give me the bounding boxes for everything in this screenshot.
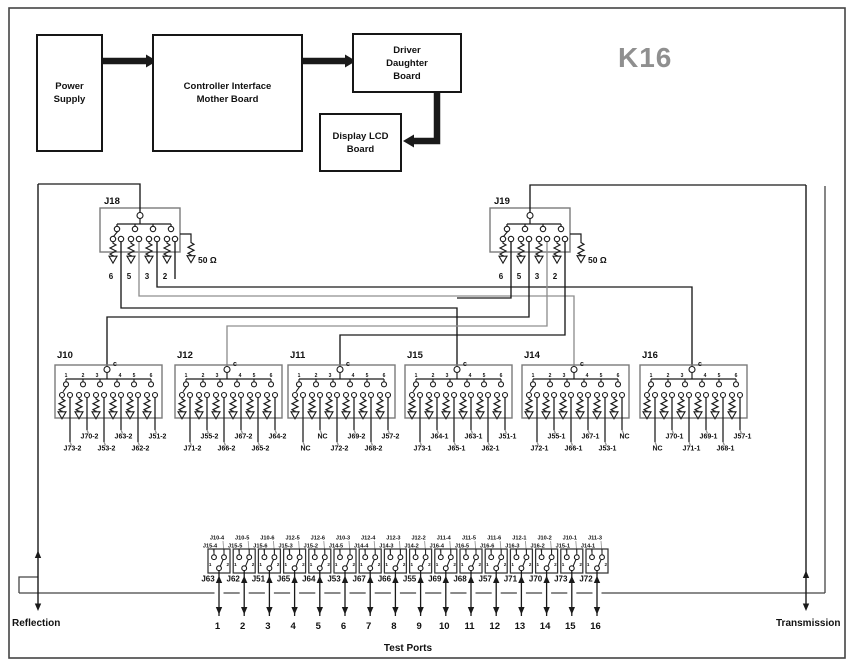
output-number: 2 bbox=[163, 272, 168, 281]
cable-label: J12-3 bbox=[386, 536, 400, 542]
cable-label: J10-2 bbox=[537, 536, 551, 542]
block-name: J11 bbox=[290, 350, 306, 361]
resistor-icon bbox=[577, 397, 583, 412]
contact-pin bbox=[508, 236, 513, 241]
switch-block-J16: J16c1NC2J70-13J71-14J69-15J68-16J57-1 bbox=[640, 350, 752, 453]
contact-pin bbox=[369, 393, 374, 398]
contact-number: 1 bbox=[411, 562, 414, 567]
contact-pin bbox=[132, 382, 137, 387]
contact-number: 2 bbox=[353, 562, 356, 567]
pin-number: 6 bbox=[270, 373, 273, 379]
common-pin bbox=[454, 367, 460, 373]
contact-pin bbox=[527, 393, 532, 398]
contact-number: 2 bbox=[453, 562, 456, 567]
resistor-icon bbox=[110, 397, 116, 412]
contact-pin bbox=[522, 226, 527, 231]
block-box bbox=[55, 365, 162, 418]
cable-label: J12-6 bbox=[311, 536, 325, 542]
pin-number: 5 bbox=[483, 373, 486, 379]
contact-pin bbox=[540, 226, 545, 231]
port-number: 10 bbox=[439, 621, 450, 632]
enclosure-bus bbox=[19, 186, 825, 593]
port-number: 5 bbox=[316, 621, 322, 632]
contact-number: 2 bbox=[504, 562, 507, 567]
contact-pin bbox=[338, 555, 343, 560]
cable-label: J10-6 bbox=[260, 536, 274, 542]
block-name: J10 bbox=[57, 350, 73, 361]
port-number: 14 bbox=[540, 621, 551, 632]
cable-label: J11-6 bbox=[487, 536, 501, 542]
contact-pin bbox=[524, 555, 529, 560]
output-number: 2 bbox=[553, 272, 558, 281]
block-name: J12 bbox=[177, 350, 193, 361]
contact-number: 1 bbox=[234, 562, 237, 567]
pin-number: 4 bbox=[352, 373, 355, 379]
output-label: J66-2 bbox=[218, 446, 236, 453]
output-label: J64-2 bbox=[269, 434, 287, 441]
contact-pin bbox=[558, 226, 563, 231]
contact-pin bbox=[81, 382, 86, 387]
port-connector-J72: J11-3J14-112J7216 bbox=[579, 536, 608, 633]
port-connector-J65: J12-5J15-312J654 bbox=[277, 536, 306, 633]
contact-pin bbox=[616, 382, 621, 387]
output-label: J65-1 bbox=[448, 446, 466, 453]
port-number: 7 bbox=[366, 621, 371, 632]
common-pin bbox=[224, 367, 230, 373]
contact-pin bbox=[666, 382, 671, 387]
switch-block-J10: J10c1J73-22J70-23J53-24J63-25J62-26J51-2 bbox=[55, 350, 167, 453]
route-J18-6 bbox=[121, 242, 457, 366]
contact-pin bbox=[427, 393, 432, 398]
resistor-icon bbox=[644, 397, 650, 412]
resistor-icon bbox=[494, 397, 500, 412]
resistor-icon bbox=[343, 397, 349, 412]
contact-pin bbox=[414, 382, 419, 387]
contact-pin bbox=[544, 236, 549, 241]
contact-pin bbox=[115, 382, 120, 387]
contact-pin bbox=[168, 226, 173, 231]
down-arrowhead-icon bbox=[417, 607, 423, 615]
pin-number: 6 bbox=[735, 373, 738, 379]
port-number: 1 bbox=[215, 621, 221, 632]
ground-icon bbox=[577, 256, 585, 263]
up-arrowhead-icon bbox=[468, 576, 474, 583]
up-arrowhead-icon bbox=[35, 551, 41, 559]
ground-icon bbox=[127, 256, 135, 263]
output-label: J70-1 bbox=[666, 434, 684, 441]
contact-pin bbox=[136, 393, 141, 398]
contact-pin bbox=[335, 393, 340, 398]
contact-pin bbox=[136, 236, 141, 241]
connector-name: J68 bbox=[453, 575, 467, 584]
contact-pin bbox=[188, 393, 193, 398]
contact-number: 1 bbox=[335, 562, 338, 567]
contact-number: 1 bbox=[486, 562, 489, 567]
switch-arm bbox=[220, 560, 223, 567]
contact-pin bbox=[721, 393, 726, 398]
resistor-icon bbox=[179, 397, 185, 412]
common-label: c bbox=[233, 361, 237, 368]
pin-number: 1 bbox=[532, 373, 535, 379]
contact-pin bbox=[482, 382, 487, 387]
pin-number: 3 bbox=[563, 373, 566, 379]
contact-pin bbox=[662, 393, 667, 398]
resistor-icon bbox=[611, 397, 617, 412]
cable-label: J10-3 bbox=[336, 536, 350, 542]
contact-pin bbox=[172, 236, 177, 241]
up-arrowhead-icon bbox=[216, 576, 222, 583]
up-arrowhead-icon bbox=[493, 576, 499, 583]
output-label: J57-2 bbox=[382, 434, 400, 441]
driver-label: Driver bbox=[393, 44, 420, 57]
pin-number: 6 bbox=[383, 373, 386, 379]
contact-number: 2 bbox=[554, 562, 557, 567]
output-number: 6 bbox=[109, 272, 114, 281]
contact-pin bbox=[438, 555, 443, 560]
down-arrowhead-icon bbox=[266, 607, 272, 615]
down-arrowhead-icon bbox=[518, 607, 524, 615]
contact-pin bbox=[478, 393, 483, 398]
up-arrowhead-icon bbox=[594, 576, 600, 583]
down-arrowhead-icon bbox=[594, 607, 600, 615]
pin-number: 4 bbox=[119, 373, 122, 379]
contact-number: 1 bbox=[209, 562, 212, 567]
contact-pin bbox=[535, 393, 540, 398]
resistor-icon bbox=[230, 397, 236, 412]
down-arrowhead-icon bbox=[291, 607, 297, 615]
ground-icon bbox=[517, 256, 525, 263]
contact-pin bbox=[423, 555, 428, 560]
up-arrowhead-icon bbox=[417, 576, 423, 583]
connector-name: J66 bbox=[378, 575, 392, 584]
output-number: 3 bbox=[535, 272, 540, 281]
resistor-icon bbox=[526, 397, 532, 412]
output-label: NC bbox=[619, 434, 629, 441]
contact-pin bbox=[77, 393, 82, 398]
port-connector-J64: J12-6J15-212J645 bbox=[302, 536, 331, 633]
output-label: J72-2 bbox=[331, 446, 349, 453]
driver-label2: Daughter bbox=[386, 57, 428, 70]
output-label: J72-1 bbox=[531, 446, 549, 453]
contact-pin bbox=[549, 555, 554, 560]
contact-pin bbox=[398, 555, 403, 560]
resistor-icon bbox=[536, 242, 542, 258]
contact-pin bbox=[717, 382, 722, 387]
contact-pin bbox=[128, 393, 133, 398]
cable-label: J10-4 bbox=[210, 536, 225, 542]
contact-pin bbox=[128, 236, 133, 241]
output-label: NC bbox=[317, 434, 327, 441]
contact-pin bbox=[514, 555, 519, 560]
port-connector-J68: J11-5J16-512J6811 bbox=[453, 536, 482, 633]
common-label: c bbox=[346, 361, 350, 368]
port-number: 13 bbox=[515, 621, 526, 632]
contact-number: 1 bbox=[360, 562, 363, 567]
contact-pin bbox=[586, 393, 591, 398]
down-arrowhead-icon bbox=[543, 607, 549, 615]
pin-number: 2 bbox=[315, 373, 318, 379]
switch-block-J15: J15c1J73-12J64-13J65-14J63-15J62-16J51-1 bbox=[405, 350, 517, 453]
contact-pin bbox=[314, 382, 319, 387]
connector-name: J63 bbox=[201, 575, 215, 584]
port-connector-J71: J12-1J16-312J7113 bbox=[504, 536, 533, 633]
contact-pin bbox=[312, 555, 317, 560]
common-pin bbox=[337, 367, 343, 373]
contact-pin bbox=[444, 393, 449, 398]
transmission-arrow bbox=[803, 185, 809, 611]
connector-name: J64 bbox=[302, 575, 316, 584]
contact-pin bbox=[410, 393, 415, 398]
contact-number: 1 bbox=[259, 562, 262, 567]
common-pin bbox=[571, 367, 577, 373]
contact-pin bbox=[98, 382, 103, 387]
resistor-icon bbox=[554, 242, 560, 258]
resistor-icon bbox=[309, 397, 315, 412]
display-label2: Board bbox=[347, 143, 374, 156]
port-connector-J69: J11-4J16-412J6910 bbox=[428, 536, 457, 633]
resistor-icon bbox=[360, 397, 366, 412]
controller-mother-board-box: Controller Interface Mother Board bbox=[152, 34, 303, 152]
switch-tree-J18: J18653250 Ω bbox=[100, 196, 692, 366]
connector-name: J69 bbox=[428, 575, 442, 584]
up-arrowhead-icon bbox=[266, 576, 272, 583]
switch-block-J11: J11c1NC2NC3J72-24J69-25J68-26J57-2 bbox=[288, 350, 400, 453]
connector-name: J72 bbox=[579, 575, 593, 584]
common-pin bbox=[137, 213, 143, 219]
up-arrowhead-icon bbox=[317, 576, 323, 583]
port-number: 6 bbox=[341, 621, 346, 632]
common-pin bbox=[104, 367, 110, 373]
resistor-icon bbox=[518, 242, 524, 258]
contact-pin bbox=[273, 393, 278, 398]
contact-pin bbox=[348, 555, 353, 560]
pin-number: 5 bbox=[253, 373, 256, 379]
switch-arm bbox=[271, 560, 274, 567]
contact-pin bbox=[431, 382, 436, 387]
contact-pin bbox=[212, 555, 217, 560]
contact-pin bbox=[499, 382, 504, 387]
contact-pin bbox=[331, 382, 336, 387]
contact-pin bbox=[297, 382, 302, 387]
connector-name: J57 bbox=[479, 575, 493, 584]
contact-number: 2 bbox=[378, 562, 381, 567]
switch-tree-J19: J19653250 Ω bbox=[107, 196, 607, 366]
contact-number: 2 bbox=[605, 562, 608, 567]
contact-pin bbox=[696, 393, 701, 398]
block-box bbox=[522, 365, 629, 418]
contact-number: 1 bbox=[310, 562, 313, 567]
route-J18-3 bbox=[157, 242, 692, 366]
down-arrowhead-icon bbox=[443, 607, 449, 615]
resistor-icon bbox=[377, 397, 383, 412]
contact-pin bbox=[132, 226, 137, 231]
resistor-icon bbox=[543, 397, 549, 412]
up-arrowhead-icon bbox=[392, 576, 398, 583]
switch-arm bbox=[573, 560, 576, 567]
contact-pin bbox=[348, 382, 353, 387]
common-pin bbox=[527, 213, 533, 219]
contact-pin bbox=[448, 555, 453, 560]
port-connector-J70: J10-2J16-212J7014 bbox=[529, 536, 558, 633]
up-arrowhead-icon bbox=[803, 571, 809, 579]
output-label: NC bbox=[300, 446, 310, 453]
output-label: J69-1 bbox=[700, 434, 718, 441]
common-label: c bbox=[113, 361, 117, 368]
contact-pin bbox=[544, 393, 549, 398]
load-resistor-label: 50 Ω bbox=[198, 255, 217, 265]
switch-block-J14: J14c1J72-12J55-13J66-14J67-15J53-16NC bbox=[522, 350, 630, 453]
contact-number: 1 bbox=[385, 562, 388, 567]
contact-pin bbox=[474, 555, 479, 560]
cable-label: J12-5 bbox=[285, 536, 299, 542]
output-label: J73-1 bbox=[414, 446, 432, 453]
contact-pin bbox=[388, 555, 393, 560]
contact-pin bbox=[205, 393, 210, 398]
down-arrowhead-icon bbox=[468, 607, 474, 615]
resistor-icon bbox=[678, 397, 684, 412]
connector-name: J73 bbox=[554, 575, 568, 584]
contact-pin bbox=[235, 382, 240, 387]
outer-frame bbox=[9, 8, 845, 658]
down-arrowhead-icon bbox=[216, 607, 222, 615]
ground-icon bbox=[553, 256, 561, 263]
resistor-icon bbox=[127, 397, 133, 412]
output-label: J71-2 bbox=[184, 446, 202, 453]
power-supply-label: Power bbox=[55, 80, 84, 93]
contact-pin bbox=[365, 382, 370, 387]
contact-pin bbox=[287, 555, 292, 560]
contact-pin bbox=[734, 382, 739, 387]
block-box bbox=[405, 365, 512, 418]
pin-number: 1 bbox=[298, 373, 301, 379]
contact-pin bbox=[464, 555, 469, 560]
resistor-icon bbox=[146, 242, 152, 258]
port-number: 2 bbox=[240, 621, 245, 632]
contact-pin bbox=[272, 555, 277, 560]
switch-arm bbox=[397, 560, 400, 567]
port-connector-J53: J10-3J14-512J536 bbox=[327, 536, 356, 633]
contact-pin bbox=[418, 393, 423, 398]
output-label: NC bbox=[652, 446, 662, 453]
driver-label3: Board bbox=[393, 70, 420, 83]
route-J19-2 bbox=[340, 242, 565, 366]
pin-number: 1 bbox=[65, 373, 68, 379]
pin-number: 1 bbox=[185, 373, 188, 379]
power-supply-label2: Supply bbox=[54, 93, 86, 106]
pin-number: 2 bbox=[82, 373, 85, 379]
switch-arm bbox=[346, 560, 349, 567]
tree-name: J18 bbox=[104, 196, 120, 207]
contact-pin bbox=[738, 393, 743, 398]
contact-number: 2 bbox=[579, 562, 582, 567]
switch-arm bbox=[245, 560, 248, 567]
port-connector-J57: J11-6J16-612J5712 bbox=[479, 536, 508, 633]
pin-number: 1 bbox=[415, 373, 418, 379]
output-label: J53-2 bbox=[98, 446, 116, 453]
contact-pin bbox=[218, 382, 223, 387]
contact-pin bbox=[110, 236, 115, 241]
resistor-icon bbox=[144, 397, 150, 412]
contact-pin bbox=[85, 393, 90, 398]
pin-number: 6 bbox=[150, 373, 153, 379]
down-arrowhead-icon bbox=[493, 607, 499, 615]
output-label: J53-1 bbox=[599, 446, 617, 453]
block-name: J16 bbox=[642, 350, 658, 361]
output-label: J55-1 bbox=[548, 434, 566, 441]
contact-pin bbox=[679, 393, 684, 398]
contact-pin bbox=[489, 555, 494, 560]
contact-pin bbox=[180, 393, 185, 398]
ground-icon bbox=[163, 256, 171, 263]
pin-number: 3 bbox=[96, 373, 99, 379]
pin-number: 5 bbox=[718, 373, 721, 379]
output-label: J68-2 bbox=[365, 446, 383, 453]
contact-pin bbox=[154, 236, 159, 241]
resistor-icon bbox=[264, 397, 270, 412]
resistor-icon bbox=[712, 397, 718, 412]
contact-number: 1 bbox=[511, 562, 514, 567]
down-arrowhead-icon bbox=[35, 604, 41, 612]
load-resistor-label: 50 Ω bbox=[588, 255, 607, 265]
ground-icon bbox=[145, 256, 153, 263]
pin-number: 6 bbox=[617, 373, 620, 379]
route-J19-6 bbox=[457, 242, 511, 298]
transmission-feed-wire bbox=[530, 185, 806, 213]
pin-number: 6 bbox=[500, 373, 503, 379]
contact-pin bbox=[322, 555, 327, 560]
resistor-icon bbox=[93, 397, 99, 412]
contact-pin bbox=[670, 393, 675, 398]
resistor-icon bbox=[164, 242, 170, 258]
contact-number: 1 bbox=[537, 562, 540, 567]
port-connector-J66: J12-3J14-312J668 bbox=[378, 536, 407, 633]
contact-pin bbox=[469, 393, 474, 398]
contact-number: 2 bbox=[277, 562, 280, 567]
switch-block-J12: J12c1J71-22J55-23J66-24J67-25J65-26J64-2 bbox=[175, 350, 287, 453]
down-arrowhead-icon bbox=[342, 607, 348, 615]
contact-pin bbox=[448, 382, 453, 387]
contact-pin bbox=[231, 393, 236, 398]
cable-label: J10-1 bbox=[563, 536, 577, 542]
contact-pin bbox=[153, 393, 158, 398]
output-number: 6 bbox=[499, 272, 504, 281]
resistor-icon bbox=[247, 397, 253, 412]
test-ports-label: Test Ports bbox=[328, 643, 488, 654]
pin-number: 4 bbox=[239, 373, 242, 379]
contact-pin bbox=[118, 236, 123, 241]
ground-icon bbox=[499, 256, 507, 263]
contact-pin bbox=[564, 555, 569, 560]
block-box bbox=[640, 365, 747, 418]
common-label: c bbox=[463, 361, 467, 368]
contact-number: 2 bbox=[403, 562, 406, 567]
down-arrowhead-icon bbox=[241, 607, 247, 615]
pin-number: 3 bbox=[446, 373, 449, 379]
controller-label: Controller Interface bbox=[184, 80, 272, 93]
switch-arm bbox=[598, 560, 601, 567]
contact-number: 1 bbox=[285, 562, 288, 567]
block-name: J15 bbox=[407, 350, 424, 361]
resistor-icon bbox=[292, 397, 298, 412]
contact-pin bbox=[595, 393, 600, 398]
cable-label: J12-1 bbox=[512, 536, 526, 542]
contact-pin bbox=[386, 393, 391, 398]
resistor-icon bbox=[460, 397, 466, 412]
contact-pin bbox=[248, 393, 253, 398]
contact-pin bbox=[435, 393, 440, 398]
pin-number: 1 bbox=[650, 373, 653, 379]
contact-pin bbox=[214, 393, 219, 398]
